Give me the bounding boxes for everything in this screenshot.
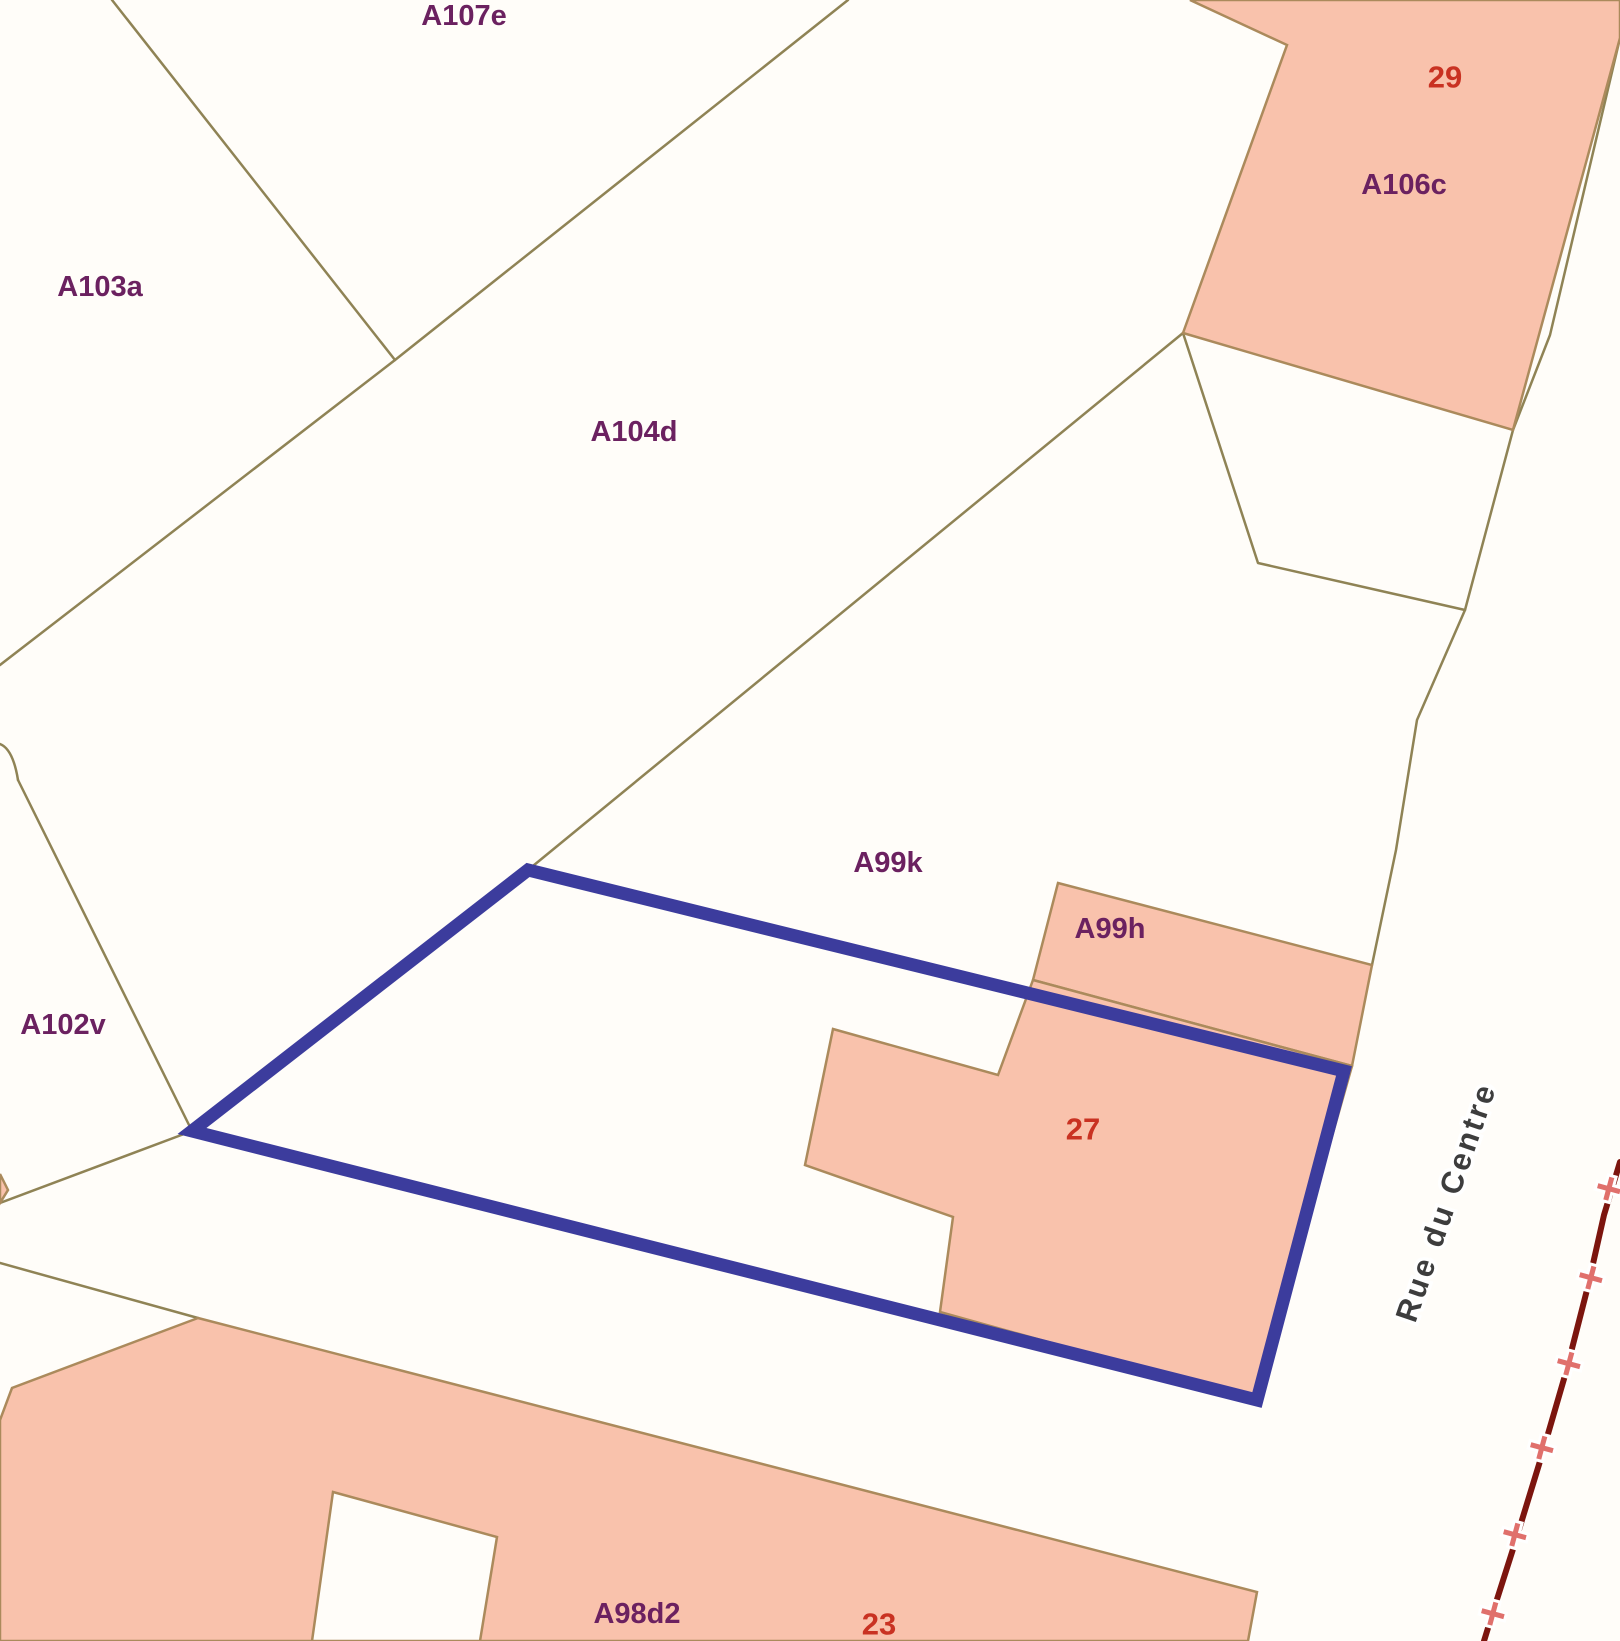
parcel-label-a99h: A99h [1075,913,1146,945]
house-number-n23: 23 [862,1607,896,1641]
parcel-label-a98d2: A98d2 [593,1598,680,1630]
parcel-label-a99k: A99k [853,847,923,879]
parcel-label-a102v: A102v [20,1009,105,1041]
cadastral-map-canvas: ++++++A107eA103aA104dA102vA99kA99hA106cA… [0,0,1620,1641]
house-number-n27: 27 [1066,1112,1100,1147]
parcel-label-a106c: A106c [1361,169,1446,201]
parcel-label-a103a: A103a [57,271,143,303]
parcel-label-a104d: A104d [590,416,677,448]
cadastral-map: ++++++A107eA103aA104dA102vA99kA99hA106cA… [0,0,1620,1641]
parcel-label-a107e: A107e [421,0,506,32]
house-number-n29: 29 [1428,60,1462,95]
